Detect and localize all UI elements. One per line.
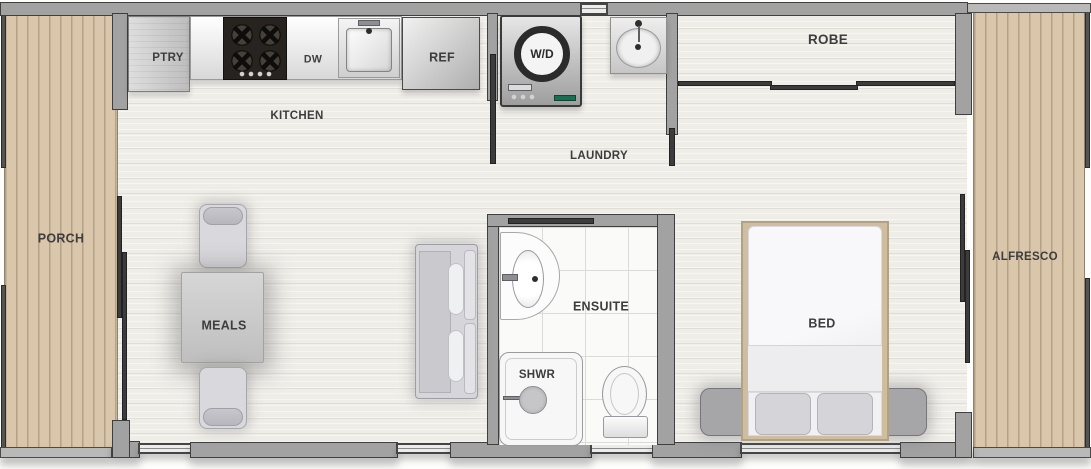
floor-plan: W/D PORCH PTRY DW REF KITCHEN LAUNDRY RO…: [0, 0, 1091, 469]
burner-icon: [231, 50, 253, 72]
sofa-backrest: [464, 250, 476, 320]
top-wall: [0, 2, 968, 16]
robe-sliding-door-track: [770, 85, 858, 90]
laundry-robe-wall: [666, 13, 678, 135]
room-label-ensuite: ENSUITE: [573, 300, 629, 313]
meals-window: [138, 443, 192, 454]
laundry-window: [580, 3, 608, 15]
sofa: [415, 244, 478, 399]
sink-spout: [366, 28, 372, 34]
burner-icon: [259, 24, 281, 46]
toilet-cistern: [603, 416, 648, 438]
ensuite-sliding-door: [508, 218, 594, 224]
bedroom-door: [669, 128, 675, 166]
alfresco-sliding-door: [965, 250, 970, 363]
alfresco-edge-rail: [1085, 278, 1090, 448]
room-label-porch: PORCH: [38, 232, 85, 245]
tub-drain: [635, 44, 641, 50]
chair-back: [203, 408, 243, 426]
room-label-alfresco: ALFRESCO: [992, 250, 1058, 262]
porch-step-edge: [0, 447, 112, 458]
sofa-cushion: [448, 263, 464, 315]
left-wall-lower: [112, 420, 130, 458]
dining-chair: [199, 204, 247, 268]
fixture-label-fridge: REF: [429, 51, 455, 64]
sink-faucet: [358, 20, 380, 26]
dining-chair: [199, 367, 247, 429]
tub-spout: [638, 26, 640, 42]
alfresco-deck: [973, 12, 1085, 449]
left-wall-upper: [112, 13, 128, 110]
fixture-label-shower: SHWR: [519, 368, 555, 380]
alfresco-step-edge: [973, 447, 1091, 458]
bed-pillow: [817, 393, 873, 435]
toilet-bowl: [602, 366, 647, 422]
alfresco-edge-rail: [1085, 5, 1090, 168]
robe-sliding-door-track: [678, 81, 772, 86]
vanity-tap: [502, 274, 518, 281]
sofa-cushion: [448, 330, 464, 382]
sofa-backrest: [464, 323, 476, 394]
chair-back: [203, 207, 243, 225]
laundry-cavity-door: [490, 54, 496, 164]
washer-dryer-label: W/D: [530, 47, 553, 61]
bed-pillow: [755, 393, 811, 435]
room-label-meals: MEALS: [201, 319, 246, 332]
room-label-kitchen: KITCHEN: [270, 109, 323, 121]
detergent-drawer: [508, 84, 532, 91]
cooktop: [223, 17, 287, 80]
bed-fold-band: [748, 345, 882, 392]
porch-edge-rail: [1, 10, 6, 168]
sofa-seat: [419, 251, 451, 393]
room-label-laundry: LAUNDRY: [570, 149, 628, 161]
ensuite-right-wall: [657, 214, 675, 445]
alfresco-top-rail: [965, 3, 1091, 13]
bedroom-window: [740, 443, 902, 454]
fixture-label-dishwasher: DW: [304, 55, 322, 66]
burner-icon: [259, 50, 281, 72]
washer-dryer-buttons: [510, 94, 538, 100]
porch-sliding-door: [122, 252, 127, 420]
living-window: [396, 443, 452, 454]
vanity-drain: [532, 276, 538, 282]
shower-head: [519, 386, 547, 414]
room-label-robe: ROBE: [808, 32, 848, 46]
washer-dryer-door: W/D: [514, 26, 570, 82]
washer-dryer: W/D: [500, 15, 582, 107]
sink-bowl: [346, 28, 392, 72]
burner-icon: [231, 24, 253, 46]
washer-dryer-display: [554, 95, 576, 101]
fixture-label-pantry: PTRY: [152, 51, 183, 63]
room-label-bed: BED: [808, 317, 835, 330]
ensuite-left-wall: [487, 214, 499, 445]
right-wall-lower: [955, 412, 972, 458]
robe-right-wall: [955, 13, 972, 115]
robe-sliding-door-track: [856, 81, 955, 86]
cooktop-knobs: [238, 71, 274, 77]
porch-edge-rail: [1, 285, 6, 448]
bottom-wall-segment: [190, 442, 398, 458]
